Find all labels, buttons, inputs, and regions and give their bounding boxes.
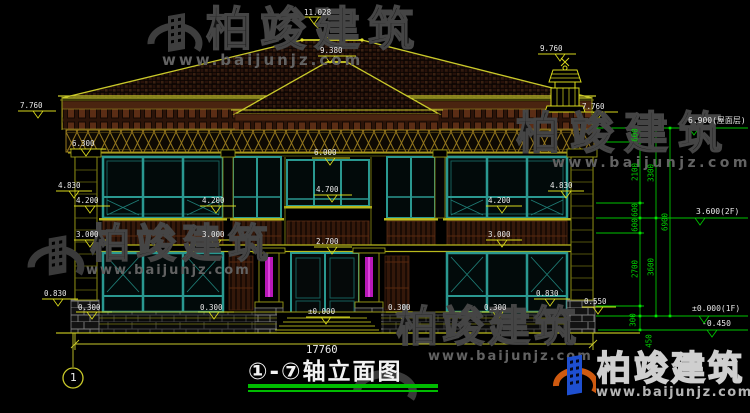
title-block: ①-⑦轴立面图 [0,0,750,413]
title-underline-thick [248,384,438,388]
drawing-title: ①-⑦轴立面图 [248,361,403,384]
cad-elevation-drawing: 柏竣建筑 www.baijunjz.com 柏竣建筑 www.baijunjz.… [0,0,750,413]
title-underline-thin [248,390,438,392]
